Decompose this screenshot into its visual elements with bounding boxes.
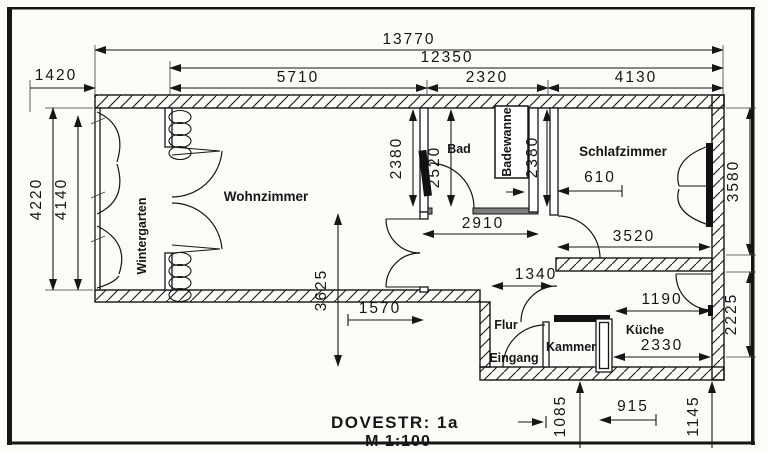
dim-label: 4140 — [53, 178, 70, 220]
scale-label: M 1:100 — [365, 433, 431, 450]
address-label: DOVESTR: 1a — [331, 413, 459, 432]
dim-label: 2910 — [462, 215, 504, 232]
scan-border-right — [751, 7, 755, 445]
schlafzimmer-window-glazing — [706, 143, 713, 227]
wall-flur-west-lower — [420, 287, 428, 292]
dim-label: 2520 — [426, 146, 443, 188]
dim-label: 5710 — [277, 69, 319, 86]
dim-label: 2380 — [524, 136, 541, 178]
wall-bad-south-stub — [428, 208, 432, 214]
wall-schlafzimmer-west — [550, 108, 558, 215]
dim-label: 1340 — [515, 266, 557, 283]
dim-label: 915 — [617, 398, 649, 415]
scan-border-top — [7, 7, 755, 10]
scan-border-left — [7, 7, 12, 445]
dim-label: 2225 — [723, 293, 740, 335]
dim-label: 1420 — [35, 67, 77, 84]
room-label-wohnzimmer: Wohnzimmer — [224, 189, 309, 204]
dim-label: 2380 — [388, 137, 405, 179]
dim-label: 3625 — [313, 269, 330, 311]
floor-plan-svg: 13770 12350 5710 2320 4130 1420 4220 414… — [0, 0, 768, 452]
room-label-bad: Bad — [447, 142, 471, 156]
room-label-badewanne: Badewanne — [500, 107, 514, 177]
dim-label: 1145 — [685, 395, 702, 436]
room-label-flur: Flur — [494, 318, 518, 332]
dim-label: 3580 — [725, 160, 742, 202]
wall-schlafzimmer-bottom — [556, 258, 712, 271]
dim-label: 2320 — [466, 69, 508, 86]
dim-label: 1570 — [359, 300, 401, 317]
dim-label: 1190 — [641, 291, 682, 308]
chimney-block-inner — [600, 323, 609, 369]
dim-label: 4130 — [615, 69, 657, 86]
room-label-kueche: Küche — [626, 323, 664, 337]
dim-label: 12350 — [420, 49, 473, 66]
dim-label: 3520 — [613, 228, 655, 245]
wall-top — [95, 95, 724, 108]
wall-wintergarten-glazing — [95, 108, 100, 290]
wall-bad-south — [473, 208, 538, 214]
scanned-floorplan-page: 13770 12350 5710 2320 4130 1420 4220 414… — [0, 0, 768, 452]
room-label-schlafzimmer: Schlafzimmer — [579, 144, 668, 159]
dim-label: 610 — [584, 169, 616, 186]
room-label-wintergarten: Wintergarten — [135, 198, 149, 275]
wall-right — [712, 95, 724, 380]
room-label-eingang: Eingang — [489, 351, 538, 365]
dim-label: 1085 — [552, 395, 569, 437]
dim-label: 13770 — [382, 31, 435, 48]
dim-label: 4220 — [28, 178, 45, 220]
wall-flur-west-upper — [420, 212, 428, 219]
room-label-kammer: Kammer — [546, 340, 596, 354]
dim-label: 2330 — [641, 337, 683, 354]
